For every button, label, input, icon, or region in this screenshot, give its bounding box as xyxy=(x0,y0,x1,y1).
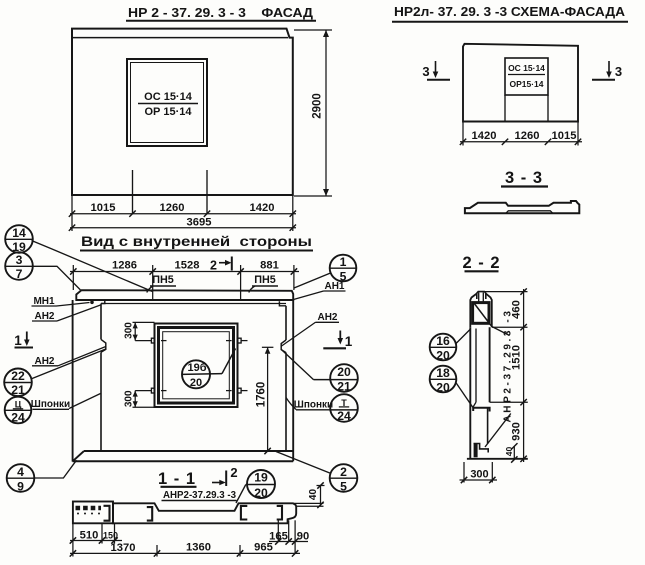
svg-text:18: 18 xyxy=(436,366,450,380)
svg-text:930: 930 xyxy=(511,422,523,441)
svg-text:1260: 1260 xyxy=(160,202,185,214)
svg-text:1360: 1360 xyxy=(186,542,211,554)
svg-text:20: 20 xyxy=(190,377,202,389)
svg-text:22: 22 xyxy=(11,369,25,383)
svg-text:ПН5: ПН5 xyxy=(152,274,174,286)
svg-text:ОС 15·14: ОС 15·14 xyxy=(508,63,545,73)
svg-text:АНР2-37.29.3 -3: АНР2-37.29.3 -3 xyxy=(163,490,236,501)
svg-text:19: 19 xyxy=(254,471,268,485)
svg-text:460: 460 xyxy=(511,300,523,319)
svg-text:3: 3 xyxy=(615,64,622,79)
svg-text:Шпонки: Шпонки xyxy=(31,399,70,410)
svg-text:1260: 1260 xyxy=(515,130,540,142)
svg-text:3695: 3695 xyxy=(187,217,212,229)
svg-text:1528: 1528 xyxy=(175,260,200,272)
svg-text:АН2: АН2 xyxy=(317,312,337,323)
svg-text:1370: 1370 xyxy=(111,542,136,554)
svg-text:300: 300 xyxy=(123,390,134,407)
svg-text:2 - 2: 2 - 2 xyxy=(462,254,500,272)
svg-text:7: 7 xyxy=(16,267,23,281)
svg-text:1420: 1420 xyxy=(472,130,497,142)
svg-text:300: 300 xyxy=(123,322,134,339)
svg-text:2900: 2900 xyxy=(312,93,324,119)
svg-text:ОС 15·14: ОС 15·14 xyxy=(144,91,193,103)
svg-text:1: 1 xyxy=(340,255,347,269)
svg-text:ПН5: ПН5 xyxy=(254,274,276,286)
svg-text:9: 9 xyxy=(17,480,24,494)
svg-text:1: 1 xyxy=(14,333,22,348)
svg-text:20: 20 xyxy=(436,381,450,395)
svg-text:150: 150 xyxy=(103,531,118,541)
svg-text:1420: 1420 xyxy=(250,202,275,214)
svg-text:16: 16 xyxy=(436,334,450,348)
svg-text:3: 3 xyxy=(422,64,429,79)
svg-text:Шпонки: Шпонки xyxy=(294,400,333,411)
svg-text:Вид с внутренней стороны: Вид с внутренней стороны xyxy=(81,234,312,249)
svg-text:1 - 1: 1 - 1 xyxy=(158,470,196,488)
svg-text:1015: 1015 xyxy=(552,130,577,142)
svg-text:24: 24 xyxy=(11,411,25,425)
svg-text:510: 510 xyxy=(80,530,99,542)
svg-text:40: 40 xyxy=(504,447,514,457)
svg-text:3: 3 xyxy=(16,253,23,267)
svg-text:Т: Т xyxy=(341,398,347,408)
svg-text:90: 90 xyxy=(297,531,309,543)
svg-text:300: 300 xyxy=(470,469,488,481)
svg-text:4: 4 xyxy=(17,465,24,479)
svg-text:2: 2 xyxy=(230,465,237,480)
svg-text:965: 965 xyxy=(254,542,273,554)
svg-text:5: 5 xyxy=(340,480,347,494)
svg-text:1760: 1760 xyxy=(255,382,267,408)
svg-text:НР2л- 37. 29. 3 -3 СХЕМА-ФАС: НР2л- 37. 29. 3 -3 СХЕМА-ФАСАДА xyxy=(394,5,625,19)
svg-text:24: 24 xyxy=(337,409,351,423)
svg-text:1015: 1015 xyxy=(91,202,116,214)
svg-text:Ц: Ц xyxy=(15,400,22,410)
svg-text:21: 21 xyxy=(11,383,25,397)
svg-text:19б: 19б xyxy=(187,362,206,374)
svg-text:1: 1 xyxy=(345,334,353,349)
svg-text:ОР15·14: ОР15·14 xyxy=(509,79,543,89)
svg-text:14: 14 xyxy=(12,226,26,240)
svg-text:20: 20 xyxy=(254,486,268,500)
svg-text:1286: 1286 xyxy=(112,260,137,272)
svg-text:1510: 1510 xyxy=(511,345,523,370)
svg-text:881: 881 xyxy=(260,260,279,272)
svg-text:20: 20 xyxy=(337,365,351,379)
svg-text:2: 2 xyxy=(210,259,217,273)
svg-text:2: 2 xyxy=(340,465,347,479)
svg-text:20: 20 xyxy=(436,349,450,363)
svg-text:ОР 15·14: ОР 15·14 xyxy=(144,106,192,118)
svg-text:3 - 3: 3 - 3 xyxy=(505,169,543,187)
svg-text:21: 21 xyxy=(337,380,351,394)
svg-text:НР 2 - 37. 29. 3 - 3 ФАСАД: НР 2 - 37. 29. 3 - 3 ФАСАД xyxy=(128,5,314,20)
svg-text:40: 40 xyxy=(308,489,319,501)
